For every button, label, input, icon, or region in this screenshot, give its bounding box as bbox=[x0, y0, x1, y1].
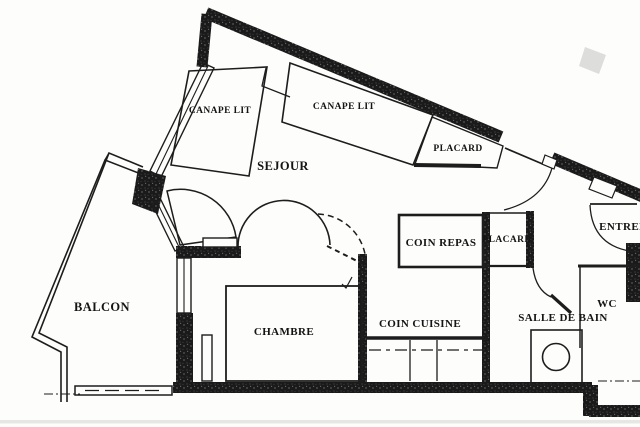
wall-bottom-right-horizontal bbox=[589, 405, 640, 417]
door-leaf-sdb bbox=[551, 295, 571, 313]
wall-top-diagonal-left bbox=[206, 13, 501, 137]
room-label-entree: ENTREE bbox=[599, 221, 640, 233]
door-leaf-chambre-dashed bbox=[327, 246, 363, 264]
scan-edge-band bbox=[0, 420, 640, 424]
scan-smudge bbox=[579, 47, 606, 74]
coin-cuisine: COIN CUISINE bbox=[366, 318, 488, 381]
washbasin-bowl bbox=[543, 344, 570, 371]
wall-chambre-left bbox=[176, 313, 193, 385]
door-swing-sejour-entree bbox=[504, 168, 552, 210]
room-label-coin-cuisine: COIN CUISINE bbox=[379, 318, 461, 330]
room-label-balcon: BALCON bbox=[74, 300, 130, 314]
placard-upper-front bbox=[414, 165, 481, 166]
chambre-opening bbox=[238, 200, 366, 264]
wall-facade-post bbox=[132, 168, 166, 214]
chambre: CHAMBRE bbox=[202, 286, 362, 381]
room-label-wc: WC bbox=[597, 298, 617, 310]
salle-de-bain-wc: SALLE DE BAIN WC bbox=[518, 266, 640, 385]
balcony-railing-inner bbox=[39, 153, 143, 402]
wall-top-left-stub bbox=[202, 14, 207, 67]
radiator-chambre bbox=[202, 335, 212, 381]
furniture-label-canape-lit-2: CANAPE LIT bbox=[313, 102, 376, 112]
balcony-railing-outer bbox=[32, 160, 141, 402]
window-facade-upper-mid bbox=[156, 66, 208, 174]
balcony-door bbox=[167, 189, 237, 247]
room-label-salle-de-bain: SALLE DE BAIN bbox=[518, 312, 608, 324]
door-swing-sdb bbox=[533, 268, 551, 297]
coin-repas: COIN REPAS bbox=[399, 215, 483, 267]
window-facade-middle-mid bbox=[157, 202, 180, 249]
wall-sejour-chambre-post bbox=[176, 246, 241, 258]
furniture-label-placard-lower: PLACARD bbox=[482, 235, 531, 245]
room-label-sejour: SEJOUR bbox=[257, 159, 309, 173]
floor-plan-drawing: BALCON CANAPE LIT CANAPE LIT SEJOUR PLAC… bbox=[0, 0, 640, 427]
room-label-coin-repas: COIN REPAS bbox=[406, 237, 477, 249]
furniture-label-placard-upper: PLACARD bbox=[433, 144, 482, 154]
door-swing-chambre-solid bbox=[238, 200, 330, 248]
furniture-label-canape-lit-1: CANAPE LIT bbox=[189, 106, 252, 116]
floor-plan-canvas: BALCON CANAPE LIT CANAPE LIT SEJOUR PLAC… bbox=[0, 0, 640, 427]
wall-bottom bbox=[173, 382, 592, 393]
radiator-sejour bbox=[203, 238, 237, 247]
room-label-chambre: CHAMBRE bbox=[254, 326, 314, 338]
door-swing-balcony bbox=[167, 189, 236, 245]
washbasin-counter bbox=[531, 330, 582, 385]
sejour: CANAPE LIT CANAPE LIT SEJOUR bbox=[171, 63, 433, 176]
canape-lit-1 bbox=[171, 67, 267, 176]
